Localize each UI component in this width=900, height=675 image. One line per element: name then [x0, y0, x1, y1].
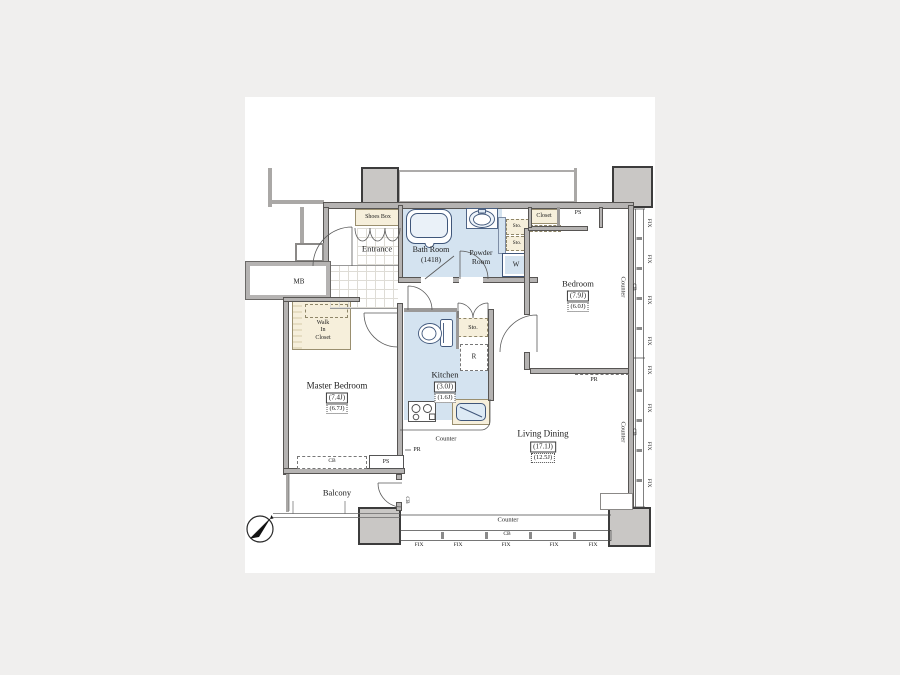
bedroom-door-arc	[500, 315, 537, 352]
balcony-label: Balcony	[323, 489, 351, 498]
counter-label-right-upper: Counter	[619, 277, 626, 298]
fridge-label: R	[472, 353, 477, 360]
cb-label-bottom: CB	[503, 532, 510, 538]
wall-bath-west	[398, 205, 403, 280]
kitchen-size-box: (3.0J)	[434, 382, 456, 393]
outer-wall-end-line	[574, 168, 577, 204]
living-size-box: (17.1J)	[530, 442, 556, 453]
wall-balcony-door-bottom	[396, 502, 402, 511]
wall-closet-left	[528, 207, 532, 228]
bathroom-size-label: (1418)	[421, 256, 441, 264]
powder-room-label-2: Room	[472, 258, 490, 266]
fix-label-right-2: FIX	[645, 255, 651, 264]
meter-box	[246, 262, 330, 299]
entrance-label: Entrance	[362, 245, 392, 254]
fix-label-bottom-5: FIX	[589, 543, 598, 549]
powder-room-area	[458, 207, 502, 277]
fix-label-bottom-4: FIX	[550, 543, 559, 549]
compass-icon	[247, 515, 274, 542]
wall-under-closet	[528, 226, 588, 231]
storage-label-2: Sto.	[513, 241, 522, 247]
pillar-bottom-right	[608, 507, 651, 547]
linen-shelf-area	[498, 217, 506, 254]
door-gap-bath	[421, 277, 453, 283]
wall-toilet-north	[404, 308, 457, 312]
fix-label-right-6: FIX	[645, 404, 651, 413]
toilet-room-area	[404, 312, 456, 349]
closet-label: Closet	[536, 213, 551, 219]
wall-kitchen-east	[488, 309, 494, 401]
fix-label-bottom-3: FIX	[502, 543, 511, 549]
entrance-tile-lower	[330, 265, 398, 309]
fix-label-right-4: FIX	[645, 337, 651, 346]
pillar-top-left	[361, 167, 399, 204]
bathroom-area	[403, 207, 458, 277]
floor-plan: Shoes Box Entrance Bath Room (1418) Powd…	[245, 97, 655, 573]
wall-notch-entrance	[295, 243, 324, 262]
powder-room-label-1: Powder	[470, 249, 493, 257]
master-size-net-box: (6.7J)	[327, 404, 348, 414]
ps-label-top: PS	[575, 210, 582, 216]
fix-label-bottom-2: FIX	[454, 543, 463, 549]
storage-label-3: Sto.	[468, 325, 478, 331]
master-bedroom-label: Master Bedroom	[307, 381, 368, 390]
pr-label-right: PR	[590, 377, 597, 383]
wall-right	[628, 205, 634, 507]
living-dining-label: Living Dining	[517, 429, 568, 438]
fix-label-bottom-1: FIX	[415, 543, 424, 549]
bedroom-rail-dash	[575, 374, 629, 377]
floorplan-page: { "colors": { "water_area": "#d4e3f0", "…	[0, 0, 900, 675]
wall-wic-top	[283, 297, 360, 302]
cb-label-right-lower: CB	[630, 428, 636, 435]
living-size-net-box: (12.5J)	[531, 453, 555, 463]
storage-double-door-arcs	[458, 303, 488, 318]
wall-left-lower	[283, 298, 289, 475]
wic-label-1: Walk	[317, 320, 330, 326]
window-right	[634, 209, 645, 507]
pillar-bottom-left	[358, 507, 401, 545]
fix-label-right-3: FIX	[645, 296, 651, 305]
counter-label-bottom: Counter	[498, 518, 519, 525]
wall-balcony-door-top	[396, 474, 402, 480]
bedroom-size-box: (7.9J)	[567, 291, 589, 302]
bedroom-size-net-box: (6.0J)	[568, 302, 589, 312]
cb-label-balcony-door: CB	[403, 496, 409, 503]
kitchen-size-net-box: (1.6J)	[435, 393, 456, 403]
wall-balcony-left	[286, 474, 289, 512]
fix-label-right-1: FIX	[645, 219, 651, 228]
counter-label-right-lower: Counter	[619, 422, 626, 443]
wall-closet-ps-divider	[557, 207, 560, 226]
cb-label-master: CB	[328, 459, 335, 465]
fix-label-right-8: FIX	[645, 479, 651, 488]
door-gap-powder	[459, 277, 483, 283]
wall-bedroom-west-upper	[524, 228, 530, 315]
kitchen-counter-label: Counter	[436, 437, 457, 444]
wall-kitchen-west	[397, 303, 403, 474]
cb-label-right-upper: CB	[630, 283, 636, 290]
wic-label-2: In	[321, 327, 326, 333]
bathroom-label: Bath Room	[413, 246, 450, 254]
fix-label-right-5: FIX	[645, 366, 651, 375]
wall-toilet-east	[456, 311, 459, 349]
fix-label-right-7: FIX	[645, 442, 651, 451]
master-bedroom-door-arc	[364, 313, 398, 347]
wic-label-3: Closet	[315, 335, 330, 341]
sink-counter-area	[452, 399, 490, 425]
wic-shelf-stripes	[293, 302, 302, 349]
toilet-door-arc	[408, 286, 432, 310]
shoes-box-label: Shoes Box	[365, 214, 391, 220]
master-size-box: (7.4J)	[326, 393, 348, 404]
kitchen-label: Kitchen	[432, 371, 459, 380]
bedroom-label: Bedroom	[562, 280, 594, 289]
corner-recess	[600, 493, 633, 510]
wall-outer-entrance	[300, 207, 304, 243]
storage-label-1: Sto.	[513, 224, 522, 230]
meter-box-label: MB	[294, 278, 305, 285]
pr-label-left: PR	[413, 447, 420, 453]
outer-wall-left-horizontal	[268, 200, 324, 204]
outer-wall-band	[398, 170, 576, 203]
washer-label: W	[513, 261, 520, 268]
ps-label-master: PS	[383, 459, 390, 465]
wall-ps-right	[599, 207, 603, 228]
wall-top	[323, 202, 634, 209]
